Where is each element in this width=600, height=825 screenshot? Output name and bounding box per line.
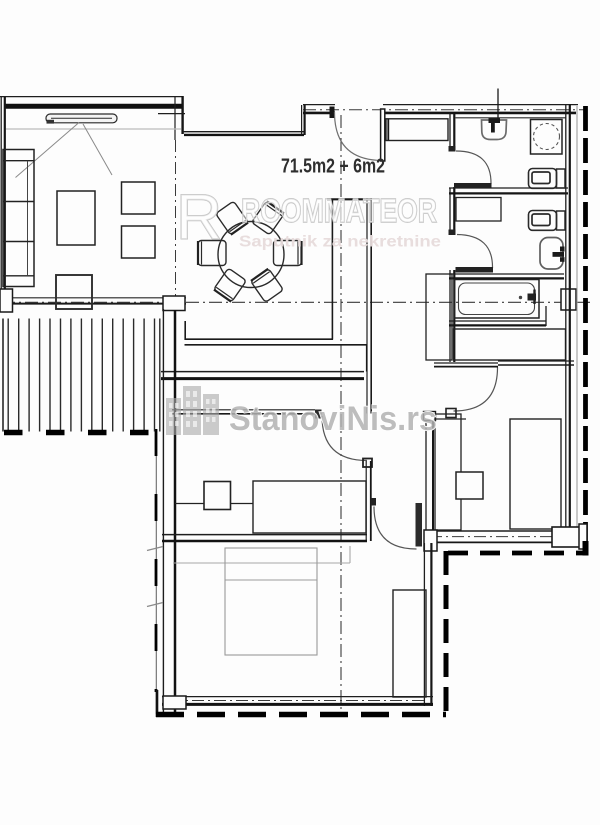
- svg-text:StanoviNis.rs: StanoviNis.rs: [229, 400, 437, 438]
- svg-text:71.5m2 + 6m2: 71.5m2 + 6m2: [281, 156, 385, 178]
- svg-text:Saputnik za nekretnine: Saputnik za nekretnine: [239, 234, 441, 251]
- svg-text:ROOMMATEOR: ROOMMATEOR: [241, 192, 437, 229]
- svg-text:R: R: [176, 181, 222, 253]
